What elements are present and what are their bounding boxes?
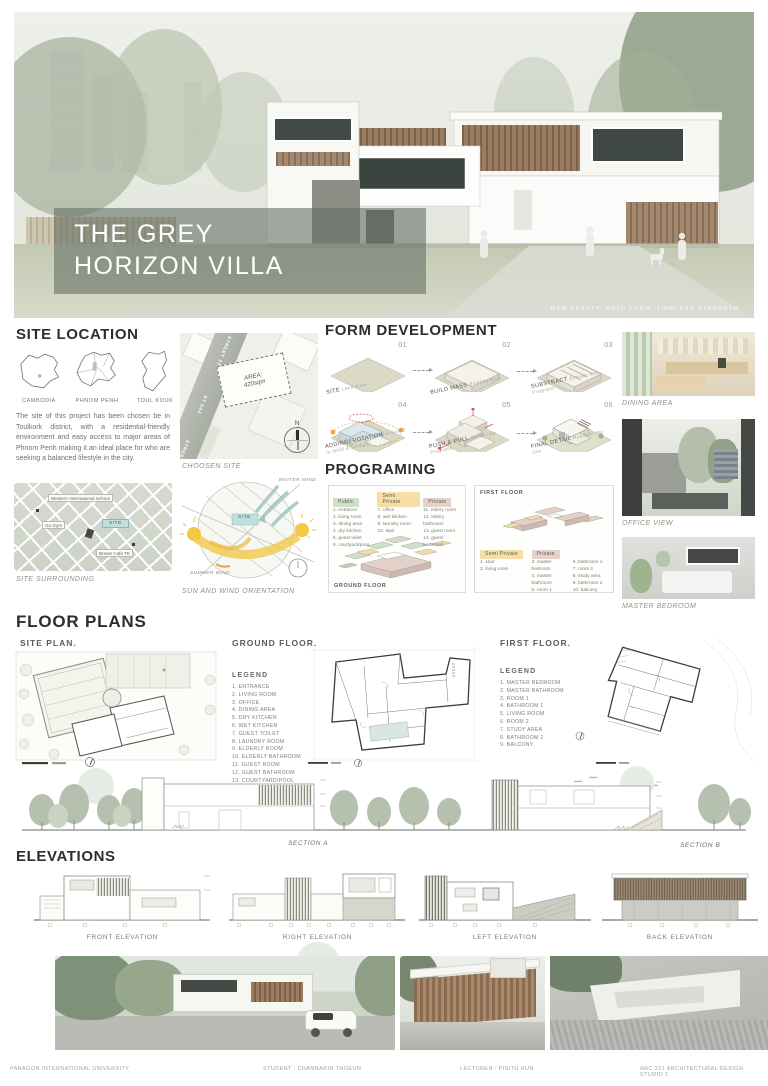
first-floor-plan-drawing [556,632,766,772]
dining-area-photo [622,332,755,396]
list-item: 8. LAUNDRY ROOM [232,739,302,747]
section-a-label: SECTION A [288,840,328,847]
list-item: 4. DINING AREA [232,707,302,715]
form-step-5: 05 PUSH & PULL Divide into Programs [429,402,515,458]
form-development-heading: FORM DEVELOPMENT [325,322,497,339]
site-plan-caption: SITE PLAN. [20,638,77,648]
site-description: The site of this project has been chosen… [16,412,170,465]
legend-label: LEGEND [232,672,268,679]
dining-area-caption: DINING AREA [622,400,673,407]
list-item: 7. GUEST TOILET [232,731,302,739]
map-label-phnom-penh: PHNOM PENH [72,398,122,404]
winter-wind-label: WINTER WIND [279,478,316,483]
form-step-2: 02 BUILD MASS Building Area [429,342,515,398]
street-31-label: STREET 31 [180,439,190,459]
list-item: 6. WET KITCHEN [232,723,302,731]
sun-wind-illustration [180,476,318,584]
semi-list: 1. stair2. living room [480,560,526,574]
arrow-icon [413,370,429,371]
list-item: 10. ELDERLY BATHROOM [232,754,302,762]
list-item: 8. wet kitchen [377,515,420,522]
list-item: 5. DRY KITCHEN [232,715,302,723]
private-list: 11. eldery room12. eldery bathroom13. gu… [423,508,461,550]
list-item: 11. eldery room [423,508,461,515]
ground-floor-program-panel: Public 1. entrance2. living room3. dinin… [328,485,466,593]
form-step-4: 04 ADDING/ ROTATION Oriented to Wind & S… [325,402,411,458]
school-label: Western International School [48,494,113,502]
cambodia-map [14,348,63,394]
back-elevation-caption: BACK ELEVATION [600,934,760,941]
list-item: 4. dry kitchen [333,529,374,536]
list-item: 1. stair [480,560,526,567]
map-pin [36,509,39,512]
right-elevation-caption: RIGHT ELEVATION [225,934,410,941]
section-b-building [492,780,662,830]
front-elevation-caption: FRONT ELEVATION [30,934,215,941]
step-label: SITE [326,387,341,396]
list-item: 7. office [377,508,420,515]
list-item: 1. entrance [333,508,374,515]
list-item: 6. bathroom 1 [573,560,610,567]
cafe-label: Brown Cafe TK [96,549,133,557]
toul-kouk-map [129,348,178,394]
form-step-6: 06 FINAL DETAIL Ready to the Use [531,402,617,458]
exterior-street-photo [55,956,395,1050]
birds [574,777,658,786]
office-view-caption: OFFICE VIEW [622,520,673,527]
form-step-3: 03 SUBSTRACT Extrude into Programs [531,342,617,398]
section-a-building [142,778,326,830]
elevations-heading: ELEVATIONS [16,848,116,865]
list-item: 5. room 1 [532,588,569,595]
private-chip: Private [532,550,560,559]
title-line-2: HORIZON VILLA [74,250,406,282]
master-bedroom-photo [622,537,755,599]
right-elevation-drawing [225,868,410,930]
ground-legend: Public 1. entrance2. living room3. dinin… [329,486,465,550]
list-item: 11. GUEST ROOM [232,762,302,770]
st-544-label: ST 544 [196,395,208,415]
surrounding-caption: SITE SURROUNDING [16,576,94,583]
list-item: 13. guest room [423,529,461,536]
title-line-1: THE GREY [74,218,406,250]
first-floor-iso-diagram [491,496,611,548]
list-item: 8. study area [573,574,610,581]
compass-icon [284,427,310,453]
phnom-penh-map [71,348,120,394]
front-elevation-drawing [30,868,215,930]
summer-wind-label: SUMMER WIND [190,571,230,576]
list-item: 3. dining area [333,522,374,529]
choosen-site-caption: CHOOSEN SITE [182,463,241,470]
list-item: 2. LIVING ROOM [232,692,302,700]
site-label: SITE [102,519,129,528]
list-item: 10. stair [377,529,420,536]
list-item: 3. OFFICE [232,700,302,708]
semi-private-chip: Semi Private [377,492,420,507]
ground-floor-caption: GROUND FLOOR [334,583,386,589]
gym-label: Go Gym [42,521,65,529]
list-item: 6. courtyard/pool [333,543,374,550]
arrow-icon [413,432,429,433]
choosen-site-map: STREET 335 ST 544 STREET 31 AREA: 420sqm… [180,333,318,459]
list-item: 7. room 2 [573,567,610,574]
map-label-cambodia: CAMBODIA [14,398,64,404]
list-item: 14. guest bathroom [423,536,461,550]
list-item: 2. living room [480,567,526,574]
private-chip: Private [423,498,451,507]
ground-floor-plan-drawing [298,642,488,767]
semi-private-chip: Semi Private [480,550,523,559]
sections-drawing [14,772,754,844]
form-step-1: 01 SITE Land Area [325,342,411,398]
sun-wind-diagram: WINTER WIND SUMMER WIND SITE [180,476,318,584]
footer-university: PARAGON INTERNATIONAL UNIVERSITY [10,1066,129,1072]
form-development-steps: 01 SITE Land Area 02 BUILD MASS Building… [325,342,617,460]
public-list: 1. entrance2. living room3. dining area4… [333,508,374,550]
back-elevation-drawing [600,868,760,930]
first-legend: Semi Private 1. stair2. living room Priv… [480,542,610,595]
list-item: 2. living room [333,515,374,522]
private-list: 3. master bedroom4. master bathroom5. ro… [532,560,610,595]
list-item: 9. ELDERLY ROOM [232,746,302,754]
list-item: 9. laundry room [377,522,420,529]
project-title: THE GREY HORIZON VILLA [54,208,426,294]
office-view-photo [622,419,755,516]
site-footprint [85,528,95,539]
floor-plans-heading: FLOOR PLANS [16,612,147,632]
section-b-label: SECTION B [680,842,720,849]
tagline: RAW BEAUTY. BOLD FORM. TIMELESS STRENGTH… [551,306,742,312]
left-elevation-caption: LEFT ELEVATION [415,934,595,941]
site-chip-label: SITE [238,515,251,520]
site-surrounding-map: Western International School Go Gym SITE… [14,483,172,571]
list-item: 12. eldery bathroom [423,515,461,529]
compass: N [282,421,312,455]
map-label-toul-kouk: TOUL KOUK [130,398,180,404]
map-pin [132,543,135,546]
aerial-roof-photo [550,956,768,1050]
public-chip: Public [333,498,359,507]
sun-wind-caption: SUN AND WIND ORIENTATION [182,588,295,595]
list-item: 9. bathroom 2 [573,581,610,588]
hero-rendering: THE GREY HORIZON VILLA RAW BEAUTY. BOLD … [14,12,754,318]
left-elevation-drawing [415,868,595,930]
programing-heading: PROGRAMING [325,461,436,478]
master-bedroom-caption: MASTER BEDROOM [622,603,696,610]
step-1-diagram [325,348,411,392]
footer-course: ARC 231 ARCHITECTURAL DESIGN STUDIO 1 [640,1066,768,1078]
semi-list: 7. office8. wet kitchen9. laundry room10… [377,508,420,536]
facade-closeup-photo [400,956,545,1050]
list-item: 3. master bedroom [532,560,569,574]
list-item: 4. master bathroom [532,574,569,588]
first-floor-program-panel: FIRST FLOOR Semi Private 1. stair2. livi… [474,485,614,593]
legend-label: LEGEND [500,668,536,675]
list-item: 5. guest toilet [333,536,374,543]
footer-lecturer: LECTURER : PISITH HUN [460,1066,534,1072]
site-plan-drawing [14,650,219,768]
site-location-heading: SITE LOCATION [16,326,139,343]
list-item: 1. ENTRANCE [232,684,302,692]
location-maps [14,348,178,394]
footer-student: STUDENT : CHANNARIN THOEUN [263,1066,361,1072]
list-item: 10. balcony [573,588,610,595]
